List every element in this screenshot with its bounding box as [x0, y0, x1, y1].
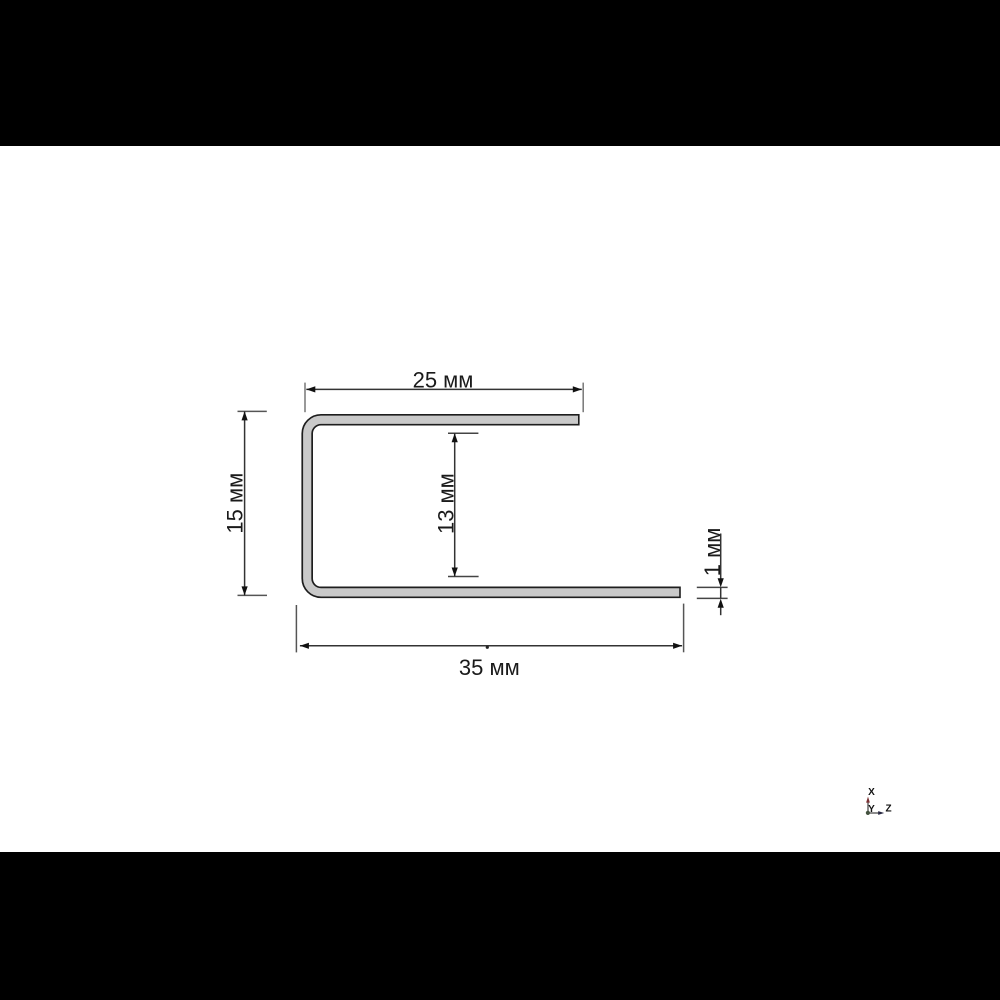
svg-text:Y: Y	[868, 804, 875, 815]
svg-text:15 мм: 15 мм	[223, 473, 248, 534]
svg-text:25 мм: 25 мм	[413, 368, 474, 393]
svg-text:35 мм: 35 мм	[459, 655, 520, 680]
svg-text:X: X	[868, 787, 875, 798]
svg-text:Z: Z	[885, 803, 891, 814]
svg-text:1 мм: 1 мм	[700, 528, 725, 577]
svg-text:13 мм: 13 мм	[434, 473, 459, 534]
